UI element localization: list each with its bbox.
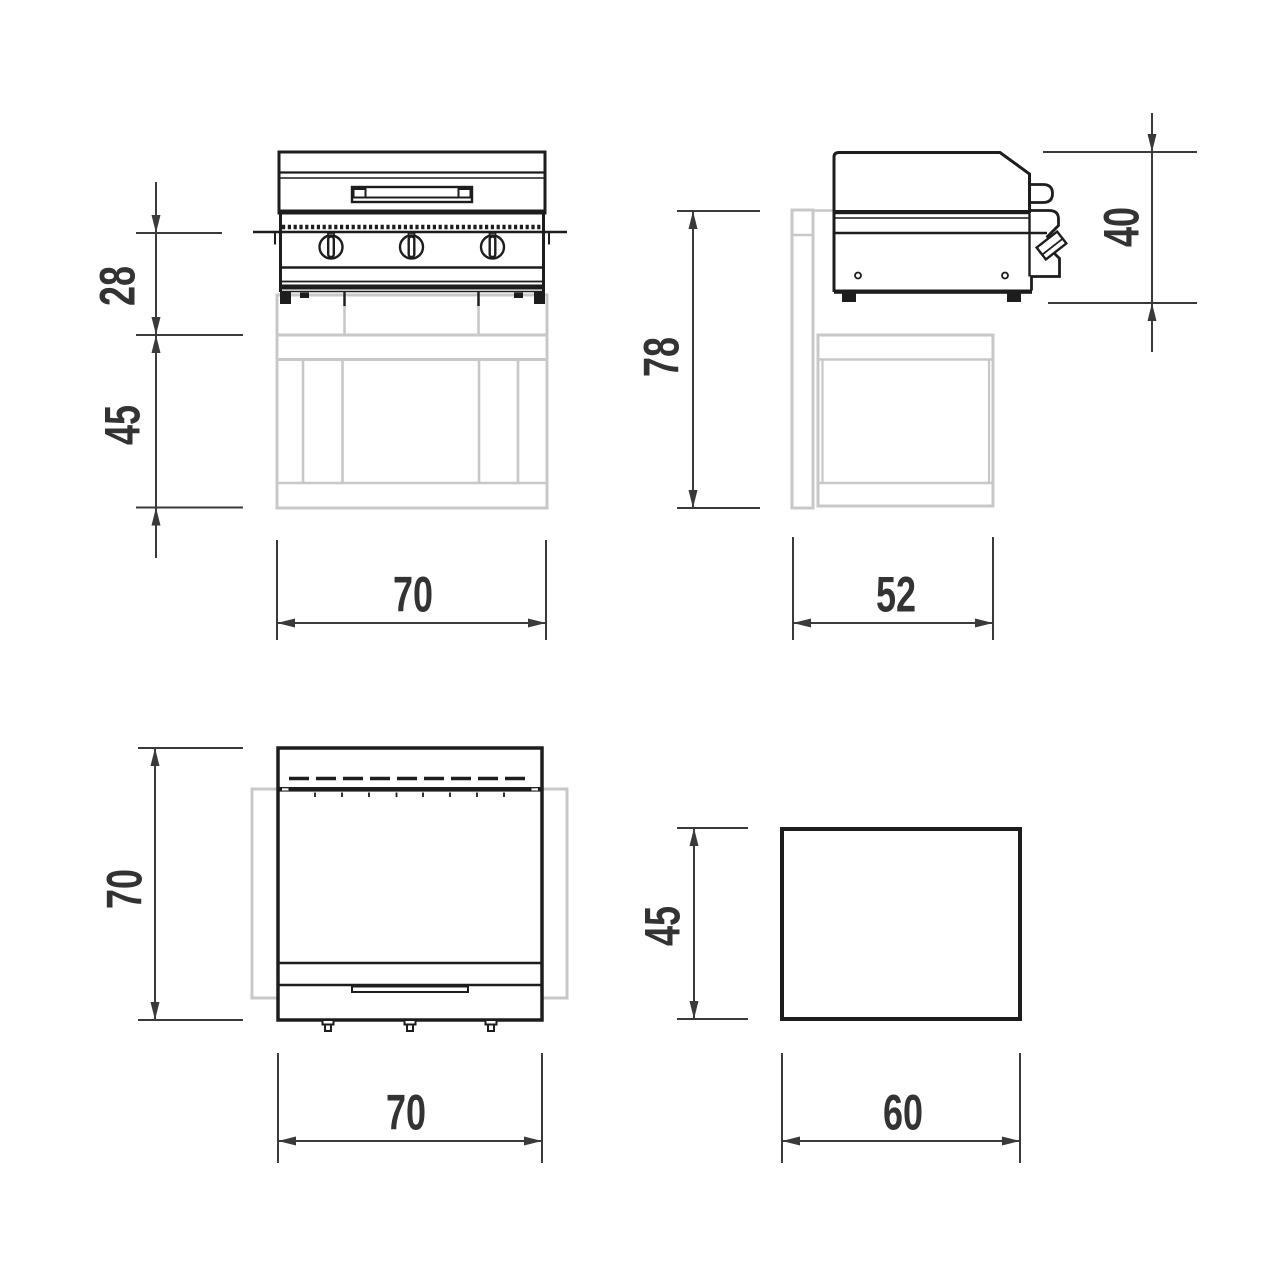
dim-label-base-depth: 60 (883, 1086, 923, 1141)
front-view-ghost-base (277, 295, 547, 508)
handle-front (352, 187, 472, 202)
dim-label-base-height: 45 (636, 906, 691, 946)
dim-label-front-width: 70 (393, 568, 433, 623)
dim-base-height: 45 (636, 828, 748, 1019)
technical-drawing-sheet: 28 45 70 (0, 0, 1280, 1280)
dim-label-top-depth: 70 (98, 869, 153, 909)
knob-tab-icon (323, 1020, 334, 1031)
dim-label-side-base-depth: 52 (876, 568, 916, 623)
dim-base-depth: 60 (782, 1053, 1020, 1163)
foot-front-left (280, 292, 291, 304)
foot-side-left (842, 294, 856, 303)
screw-icon (855, 273, 861, 279)
burner-knob-icon (320, 233, 343, 259)
dim-front-heights: 28 45 (91, 182, 243, 558)
dim-label-front-upper-height: 28 (91, 266, 146, 306)
dim-label-top-width: 70 (386, 1086, 426, 1141)
foot-side-right (1007, 294, 1021, 303)
dim-side-total-height: 78 (635, 211, 760, 508)
knob-tab-icon (486, 1020, 497, 1031)
handle-top (352, 987, 468, 993)
handle-side (1030, 185, 1053, 203)
dim-label-side-total-height: 78 (635, 337, 690, 377)
lid-front (279, 152, 545, 213)
ghost-back-panel (792, 210, 813, 508)
foot-front-right (534, 292, 545, 304)
dim-side-body-height: 40 (1043, 113, 1197, 352)
front-view-appliance (253, 152, 567, 306)
dim-label-side-body-height: 40 (1095, 207, 1150, 247)
side-view-appliance (834, 153, 1066, 303)
top-view-appliance (278, 748, 542, 1031)
base-cabinet-outline (782, 829, 1020, 1019)
dim-side-base-depth: 52 (793, 537, 993, 640)
dim-label-front-base-height: 45 (96, 405, 151, 445)
burner-knob-icon (400, 233, 423, 259)
drawing-svg: 28 45 70 (0, 0, 1280, 1280)
dim-front-width: 70 (277, 540, 546, 640)
side-view-ghost-base (792, 210, 993, 508)
knob-tab-icon (405, 1020, 416, 1031)
dim-top-width: 70 (278, 1053, 542, 1163)
base-view (782, 829, 1020, 1019)
dim-top-depth: 70 (98, 748, 243, 1020)
side-knob-icon (1037, 232, 1067, 260)
lid-side (834, 153, 1030, 213)
screw-icon (1002, 273, 1008, 279)
burner-knob-icon (481, 233, 504, 259)
